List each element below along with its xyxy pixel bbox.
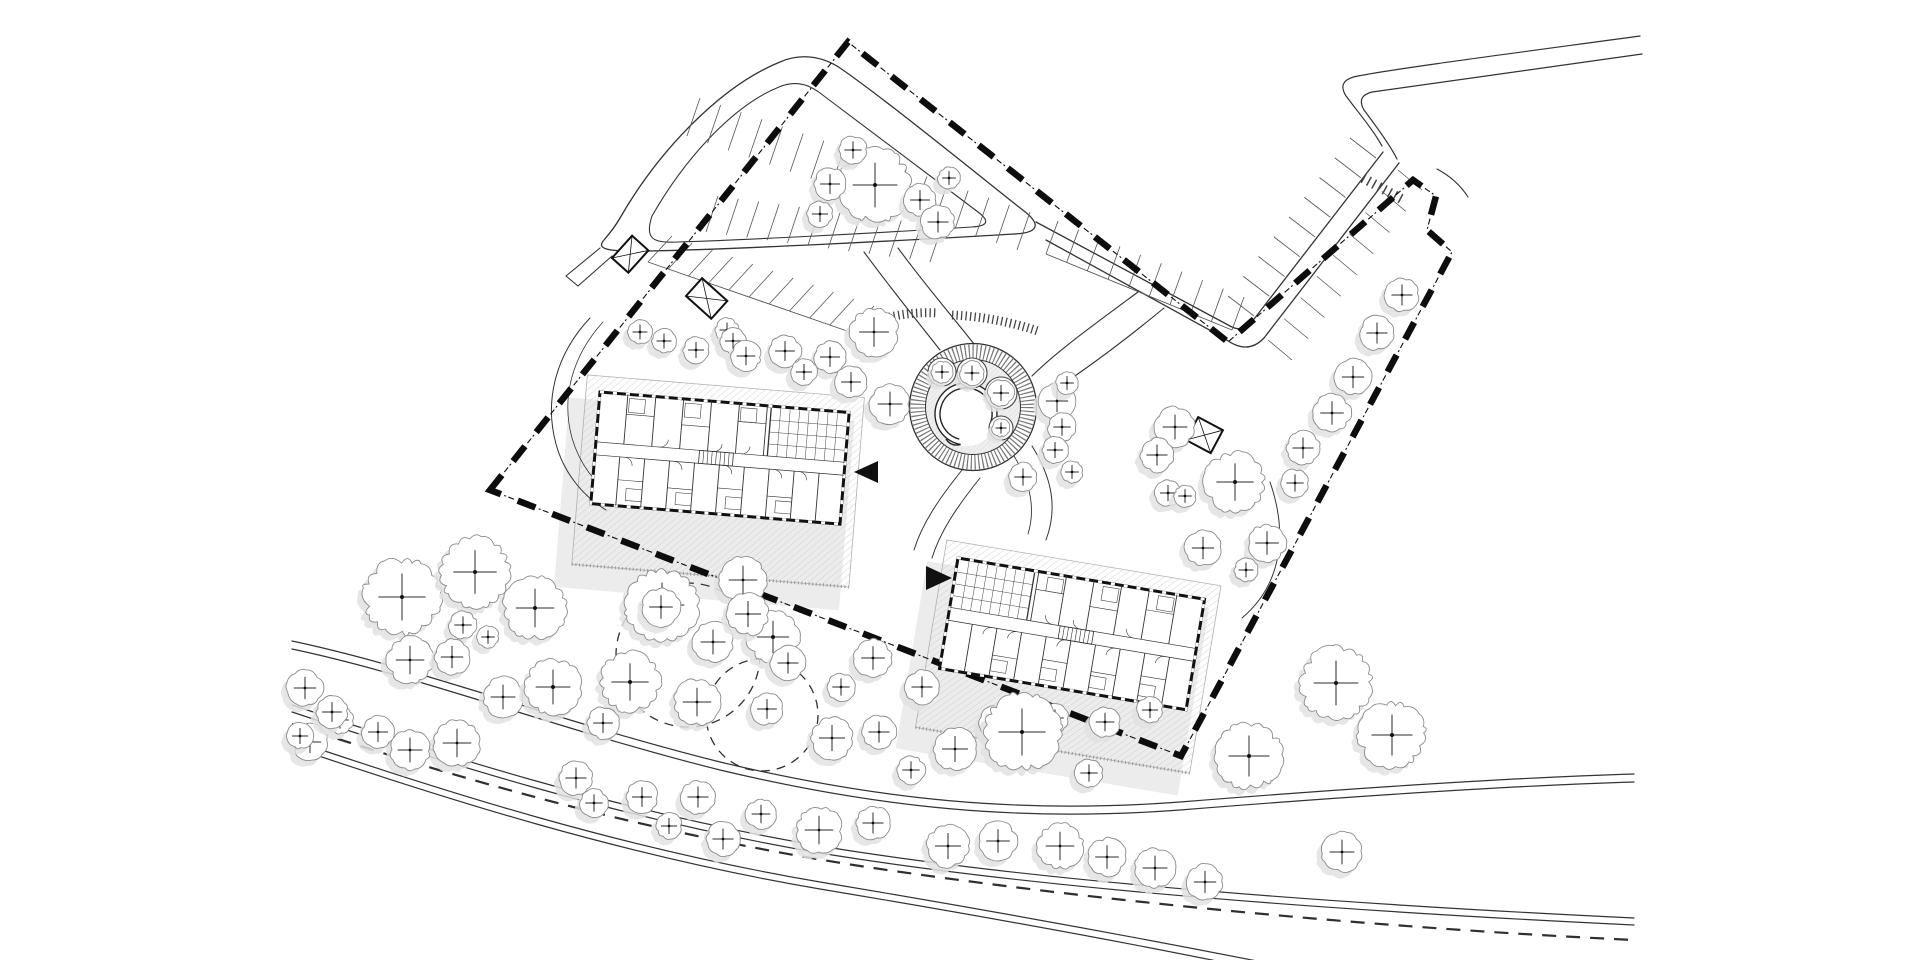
- tree-center: [771, 635, 775, 639]
- stall-rail: [1046, 254, 1232, 330]
- tree-center: [1294, 482, 1297, 485]
- tree-center: [641, 796, 644, 799]
- ne-road-inner: [1036, 152, 1383, 329]
- loop-to-plaza-b: [898, 248, 974, 344]
- tree-center: [487, 636, 490, 639]
- tree-center: [1059, 845, 1062, 848]
- tree-center: [872, 657, 875, 660]
- stall-band: [1268, 170, 1422, 360]
- tree: [357, 558, 443, 642]
- stall-line: [1228, 296, 1254, 316]
- stall-line: [1232, 297, 1244, 330]
- site-plan-drawing: [0, 0, 1920, 960]
- tree-center: [840, 686, 843, 689]
- tree-center: [1341, 851, 1344, 854]
- tree-center: [919, 199, 922, 202]
- stall-line: [1320, 178, 1346, 198]
- tree: [1198, 450, 1265, 519]
- tree-center: [921, 686, 924, 689]
- tick-edge: [952, 315, 1038, 331]
- stall-line: [1268, 340, 1292, 360]
- stall-band: [1046, 221, 1244, 330]
- tree-center: [1202, 547, 1205, 550]
- tree: [792, 808, 842, 860]
- stall-line: [1017, 212, 1030, 250]
- stall-line: [708, 105, 721, 143]
- tree-center: [1334, 681, 1338, 685]
- tree-center: [639, 331, 642, 334]
- stall-line: [790, 134, 803, 172]
- tree: [1379, 278, 1419, 318]
- tree-center: [784, 350, 787, 353]
- tree: [746, 693, 783, 731]
- tree-center: [818, 829, 821, 832]
- stall-line: [749, 271, 773, 297]
- tree-center: [331, 711, 334, 714]
- stall-line: [1289, 217, 1315, 237]
- tree: [1355, 315, 1394, 356]
- tree-center: [941, 371, 944, 374]
- tree-center: [819, 213, 822, 216]
- tree-center: [831, 737, 834, 740]
- tree: [1004, 462, 1037, 497]
- roads-layer: [292, 36, 1642, 960]
- tree-center: [1184, 495, 1187, 498]
- tree-center: [502, 696, 505, 699]
- site-plan-page: [0, 0, 1920, 960]
- tree-center: [829, 356, 832, 359]
- between-path-a: [914, 470, 962, 550]
- tree: [864, 384, 909, 431]
- tree-center: [602, 722, 605, 725]
- tree-center: [1376, 332, 1379, 335]
- tree-center: [937, 221, 940, 224]
- stall-line: [1301, 298, 1325, 318]
- tree-center: [873, 331, 876, 334]
- stub-b: [578, 256, 612, 286]
- tree-center: [889, 403, 892, 406]
- tree: [822, 673, 855, 707]
- tree-center: [1266, 542, 1269, 545]
- tree-center: [660, 606, 663, 609]
- tree: [1276, 469, 1309, 504]
- tree-center: [1167, 492, 1170, 495]
- tree-center: [873, 183, 877, 187]
- tree-center: [1054, 449, 1057, 452]
- tree-center: [1247, 754, 1251, 758]
- stall-line: [648, 236, 672, 262]
- tree: [892, 756, 926, 791]
- tree-center: [695, 349, 698, 352]
- tree: [851, 806, 890, 845]
- tree-center: [1071, 471, 1074, 474]
- tree-center: [304, 687, 307, 690]
- stall-line: [1046, 221, 1058, 254]
- tree-center: [533, 606, 537, 610]
- tree-center: [299, 735, 302, 738]
- tree: [669, 679, 721, 732]
- tree-center: [1204, 881, 1207, 884]
- entry-road-b: [1361, 54, 1642, 159]
- tree-center: [747, 613, 750, 616]
- tree-center: [971, 372, 974, 375]
- tree-center: [787, 662, 790, 665]
- tree-center: [1061, 426, 1064, 429]
- tree-center: [1233, 480, 1237, 484]
- tree: [281, 669, 324, 712]
- bin-store-2: [686, 278, 727, 319]
- tree-center: [697, 796, 700, 799]
- stall-line: [810, 292, 834, 318]
- stall-line: [830, 299, 854, 325]
- tree-center: [872, 822, 875, 825]
- tree: [381, 636, 434, 690]
- tree: [428, 720, 480, 772]
- tree: [806, 717, 853, 767]
- ne-road-outer: [1046, 163, 1399, 347]
- stall-line: [1317, 276, 1341, 296]
- tree-center: [1331, 412, 1334, 415]
- tree-center: [473, 570, 477, 574]
- tree-center: [852, 149, 855, 152]
- tree: [678, 337, 709, 370]
- stall-line: [1304, 197, 1330, 217]
- tree-center: [954, 748, 957, 751]
- stall-line: [1274, 237, 1300, 257]
- tree-center: [803, 371, 806, 374]
- tree-center: [1088, 772, 1091, 775]
- tree: [740, 799, 776, 835]
- tree: [675, 780, 715, 820]
- parking-stalls-layer: [648, 98, 1422, 360]
- stall-line: [1366, 213, 1390, 233]
- tree-center: [947, 845, 950, 848]
- tree-center: [1156, 454, 1159, 457]
- tree-center: [948, 177, 951, 180]
- tree-center: [742, 579, 745, 582]
- tree-center: [766, 708, 769, 711]
- entry-kerb: [1437, 169, 1468, 197]
- tree: [701, 821, 740, 862]
- tree-center: [1245, 569, 1248, 572]
- stall-line: [747, 201, 759, 237]
- tree-center: [1000, 427, 1003, 430]
- tree-center: [575, 777, 578, 780]
- tree-center: [1066, 382, 1069, 385]
- tree-center: [1149, 709, 1152, 712]
- tree: [1083, 837, 1126, 883]
- tree: [932, 167, 960, 195]
- tree: [519, 658, 581, 722]
- tree: [429, 639, 470, 682]
- tree: [1294, 645, 1373, 727]
- stall-line: [1350, 138, 1376, 158]
- building-1: [591, 392, 849, 524]
- tree-center: [878, 731, 881, 734]
- stall-line: [688, 250, 712, 276]
- tree: [479, 676, 523, 724]
- stall-line: [976, 198, 989, 236]
- tree-center: [628, 680, 632, 684]
- tree-center: [377, 731, 380, 734]
- stall-line: [1335, 158, 1361, 178]
- tree: [582, 707, 619, 746]
- tree: [844, 308, 898, 363]
- stall-line: [1108, 246, 1120, 279]
- tree-center: [732, 340, 735, 343]
- tree-center: [663, 340, 666, 343]
- branch-a: [1032, 292, 1138, 376]
- tree-center: [850, 381, 853, 384]
- tree: [1281, 430, 1320, 471]
- tree: [802, 201, 833, 233]
- tree: [1229, 558, 1258, 588]
- tree-center: [997, 840, 1000, 843]
- tree-center: [1352, 376, 1355, 379]
- tree-center: [745, 355, 748, 358]
- tree: [1135, 437, 1174, 479]
- stall-line: [726, 199, 738, 235]
- tree-center: [451, 656, 454, 659]
- tree: [857, 715, 897, 755]
- tree-center: [722, 838, 725, 841]
- stall-line: [687, 98, 700, 136]
- bin-store-1: [612, 236, 648, 273]
- tree-center: [1390, 733, 1394, 737]
- stall-line: [767, 204, 779, 240]
- tree-center: [668, 825, 671, 828]
- tree-center: [1104, 721, 1107, 724]
- tree-center: [910, 769, 913, 772]
- tree: [1351, 701, 1426, 775]
- tree: [1032, 823, 1084, 875]
- stall-line: [1243, 276, 1269, 296]
- tree-center: [1022, 476, 1025, 479]
- stall-line: [1349, 234, 1373, 254]
- tree-center: [462, 624, 465, 627]
- tree-center: [593, 802, 596, 805]
- tree-center: [409, 659, 412, 662]
- tree: [651, 813, 682, 846]
- tree-center: [829, 183, 832, 186]
- stall-line: [789, 285, 813, 311]
- stub-cap: [566, 276, 578, 286]
- tree: [849, 638, 892, 683]
- tree-center: [400, 595, 404, 599]
- tree: [1209, 722, 1284, 795]
- stall-line: [889, 221, 901, 257]
- tree: [1179, 530, 1221, 572]
- tree-center: [456, 742, 459, 745]
- entry-road-a: [1343, 36, 1640, 146]
- tree: [1181, 863, 1222, 906]
- tree-center: [1000, 392, 1003, 395]
- tree-center: [760, 813, 763, 816]
- tree-center: [1106, 856, 1109, 859]
- tree-center: [1302, 447, 1305, 450]
- stall-line: [1259, 257, 1285, 277]
- stall-line: [1333, 255, 1357, 275]
- stall-line: [709, 257, 733, 283]
- stall-line: [996, 205, 1009, 243]
- tree-center: [1401, 294, 1404, 297]
- tree-center: [1154, 867, 1157, 870]
- stall-line: [769, 278, 793, 304]
- tree-center: [1020, 730, 1024, 734]
- tree-center: [1174, 426, 1177, 429]
- tree-center: [409, 749, 412, 752]
- tree: [1316, 831, 1361, 878]
- tree-center: [551, 685, 555, 689]
- tree: [921, 824, 969, 874]
- stall-line: [1284, 319, 1308, 339]
- stall-line: [1211, 289, 1223, 322]
- tree: [974, 821, 1018, 867]
- tree-center: [696, 701, 699, 704]
- tree: [621, 781, 657, 820]
- tree-center: [712, 641, 715, 644]
- stall-line: [729, 264, 753, 290]
